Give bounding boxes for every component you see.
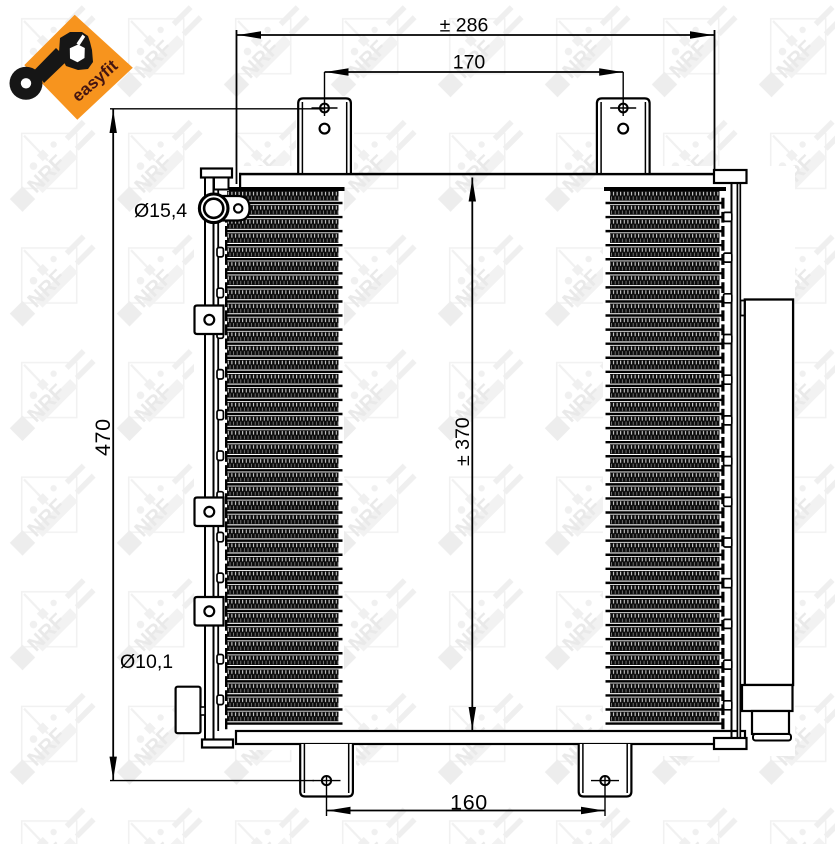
svg-text:170: 170: [453, 52, 486, 74]
svg-text:160: 160: [450, 791, 488, 815]
svg-text:± 286: ± 286: [440, 15, 489, 37]
svg-text:470: 470: [91, 418, 115, 456]
svg-text:Ø15,4: Ø15,4: [134, 200, 187, 222]
svg-text:± 370: ± 370: [452, 417, 474, 466]
svg-text:Ø10,1: Ø10,1: [120, 651, 173, 673]
